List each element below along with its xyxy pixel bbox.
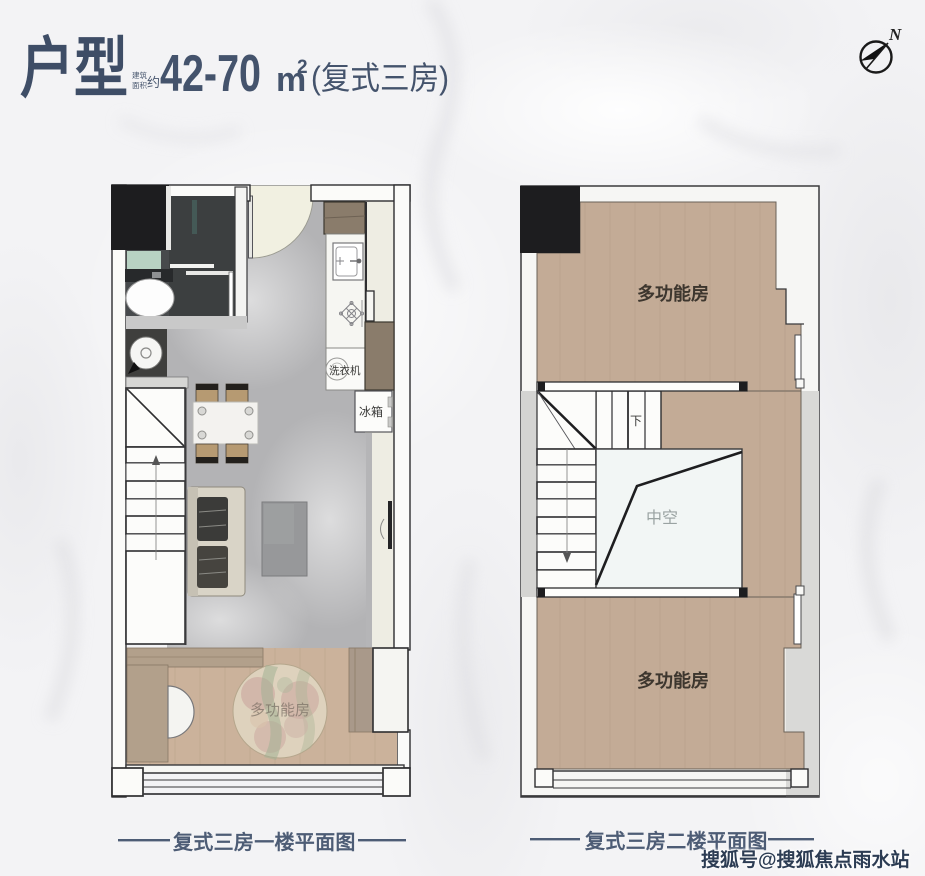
svg-text:多功能房: 多功能房 xyxy=(637,670,709,691)
svg-text:复式三房一楼平面图: 复式三房一楼平面图 xyxy=(172,830,356,854)
svg-text:面积: 面积 xyxy=(132,80,147,90)
svg-text:多功能房: 多功能房 xyxy=(250,702,310,719)
svg-text:N: N xyxy=(888,25,902,44)
svg-text:中空: 中空 xyxy=(646,509,678,527)
svg-text:下: 下 xyxy=(630,414,642,428)
svg-text:约: 约 xyxy=(147,75,160,90)
svg-text:42-70: 42-70 xyxy=(160,45,261,103)
svg-text:搜狐号@搜狐焦点雨水站: 搜狐号@搜狐焦点雨水站 xyxy=(701,848,910,871)
svg-text:多功能房: 多功能房 xyxy=(637,283,709,304)
svg-text:户型: 户型 xyxy=(20,31,128,105)
svg-text:2: 2 xyxy=(297,57,308,78)
svg-text:建筑: 建筑 xyxy=(132,70,147,80)
svg-text:(复式三房): (复式三房) xyxy=(311,60,449,96)
svg-text:洗衣机: 洗衣机 xyxy=(329,364,361,377)
svg-text:冰箱: 冰箱 xyxy=(359,404,383,419)
